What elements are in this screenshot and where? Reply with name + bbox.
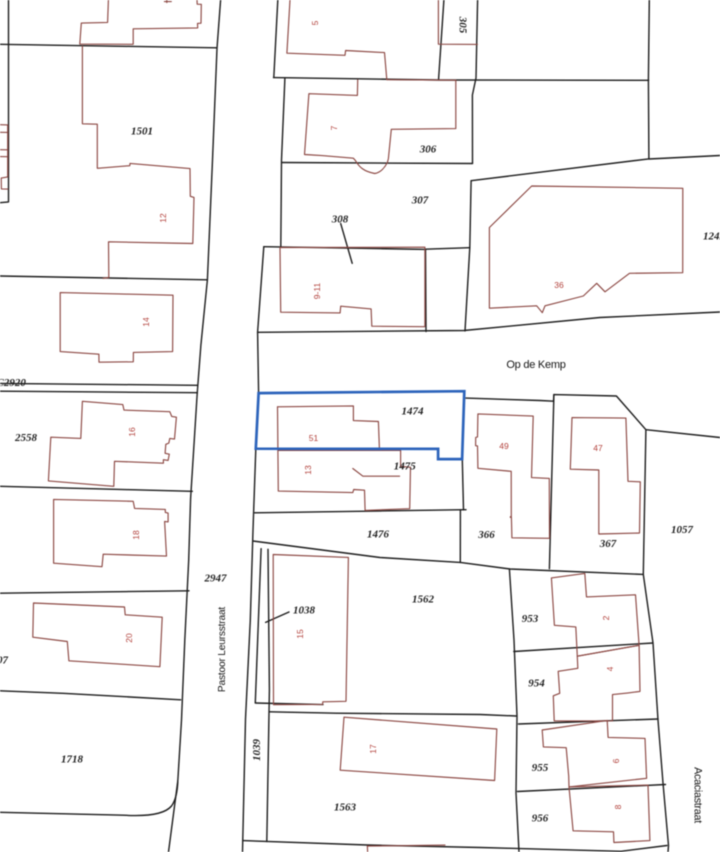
svg-text:9-11: 9-11 [312, 283, 322, 300]
svg-text:Op de Kemp: Op de Kemp [506, 359, 565, 371]
svg-text:955: 955 [532, 762, 549, 774]
svg-text:956: 956 [532, 813, 549, 825]
svg-text:367: 367 [599, 538, 617, 550]
svg-text:20: 20 [124, 633, 134, 643]
svg-text:1718: 1718 [61, 754, 84, 766]
svg-text:14: 14 [141, 317, 151, 327]
svg-text:16: 16 [127, 427, 137, 437]
svg-text:1562: 1562 [412, 594, 435, 606]
svg-text:15: 15 [295, 629, 305, 639]
svg-text:1039: 1039 [251, 739, 263, 762]
svg-text:1474: 1474 [402, 406, 425, 418]
svg-text:1563: 1563 [334, 802, 357, 814]
svg-text:2558: 2558 [14, 432, 38, 444]
svg-text:306: 306 [419, 144, 437, 156]
svg-text:305: 305 [457, 16, 469, 34]
svg-text:2: 2 [601, 615, 611, 620]
svg-text:17: 17 [368, 744, 378, 754]
svg-text:7: 7 [329, 125, 339, 130]
svg-text:49: 49 [499, 441, 509, 451]
svg-text:Pastoor Leursstraat: Pastoor Leursstraat [217, 607, 228, 692]
svg-text:36: 36 [554, 280, 564, 290]
svg-text:18: 18 [131, 530, 141, 540]
svg-text:12: 12 [158, 213, 168, 223]
svg-text:C2920: C2920 [0, 377, 26, 389]
svg-text:07: 07 [0, 655, 9, 667]
svg-text:1476: 1476 [367, 529, 390, 541]
svg-text:2947: 2947 [204, 573, 228, 585]
svg-text:6: 6 [611, 758, 621, 763]
svg-text:5: 5 [310, 20, 320, 25]
svg-text:953: 953 [522, 613, 539, 625]
svg-text:8: 8 [613, 804, 623, 809]
svg-text:366: 366 [477, 529, 495, 541]
svg-text:51: 51 [309, 433, 319, 443]
svg-text:1038: 1038 [293, 605, 316, 617]
svg-text:1475: 1475 [394, 461, 417, 473]
svg-text:Acaciastraat: Acaciastraat [692, 767, 704, 823]
svg-text:307: 307 [411, 195, 429, 207]
svg-text:1501: 1501 [131, 126, 153, 138]
svg-text:47: 47 [593, 443, 603, 453]
svg-text:308: 308 [331, 214, 349, 226]
svg-text:4: 4 [605, 666, 615, 671]
svg-text:1242: 1242 [703, 231, 720, 243]
svg-text:13: 13 [303, 465, 313, 475]
svg-text:1057: 1057 [671, 524, 694, 536]
svg-text:954: 954 [528, 678, 545, 690]
